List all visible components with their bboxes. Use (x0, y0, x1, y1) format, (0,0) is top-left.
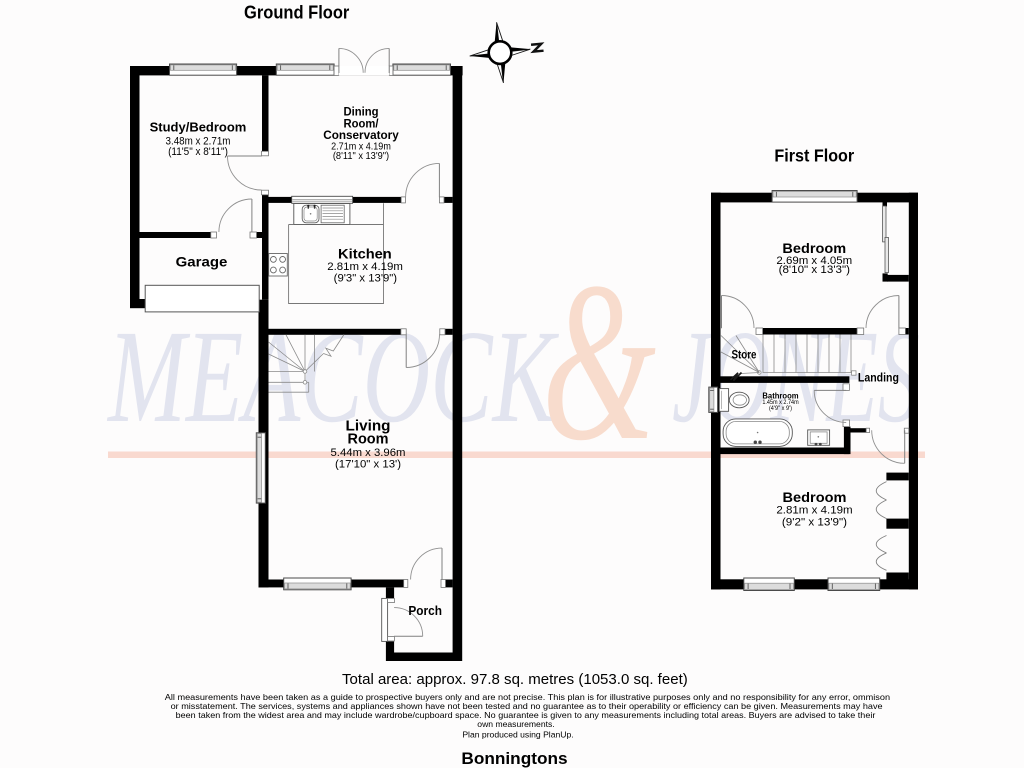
svg-text:2.81m x 4.19m: 2.81m x 4.19m (327, 261, 403, 273)
svg-text:&: & (542, 236, 656, 488)
svg-text:Kitchen: Kitchen (338, 246, 392, 262)
svg-text:Ground Floor: Ground Floor (244, 2, 349, 22)
svg-text:Study/Bedroom: Study/Bedroom (150, 120, 247, 135)
svg-text:5.44m x 3.96m: 5.44m x 3.96m (331, 447, 406, 459)
svg-text:(9'3" x 13'9"): (9'3" x 13'9") (334, 273, 397, 285)
svg-text:(4'9" x 9'): (4'9" x 9') (769, 405, 792, 412)
svg-text:Plan produced using PlanUp.: Plan produced using PlanUp. (462, 730, 573, 740)
svg-text:Garage: Garage (176, 255, 228, 270)
svg-text:MEACOCK: MEACOCK (107, 302, 560, 450)
svg-text:Porch: Porch (408, 604, 442, 618)
svg-text:(11'5" x 8'11"): (11'5" x 8'11") (168, 146, 228, 158)
svg-text:Room: Room (348, 431, 389, 447)
svg-text:Landing: Landing (858, 373, 899, 385)
svg-text:Bedroom: Bedroom (782, 241, 846, 256)
svg-text:(17'10" x 13'): (17'10" x 13') (335, 458, 401, 470)
svg-text:(9'2" x 13'9"): (9'2" x 13'9") (782, 516, 847, 528)
svg-text:Bonningtons: Bonningtons (461, 749, 567, 768)
svg-text:(8'10" x 13'3"): (8'10" x 13'3") (779, 264, 850, 276)
svg-text:Store: Store (732, 350, 757, 362)
svg-text:Bedroom: Bedroom (783, 489, 847, 505)
svg-text:2.81m x 4.19m: 2.81m x 4.19m (776, 505, 852, 517)
svg-text:Total area: approx. 97.8 sq. m: Total area: approx. 97.8 sq. metres (105… (342, 672, 688, 688)
svg-text:own measurements.: own measurements. (477, 719, 554, 729)
svg-text:First Floor: First Floor (774, 146, 854, 166)
svg-text:(8'11" x 13'9"): (8'11" x 13'9") (333, 150, 389, 162)
